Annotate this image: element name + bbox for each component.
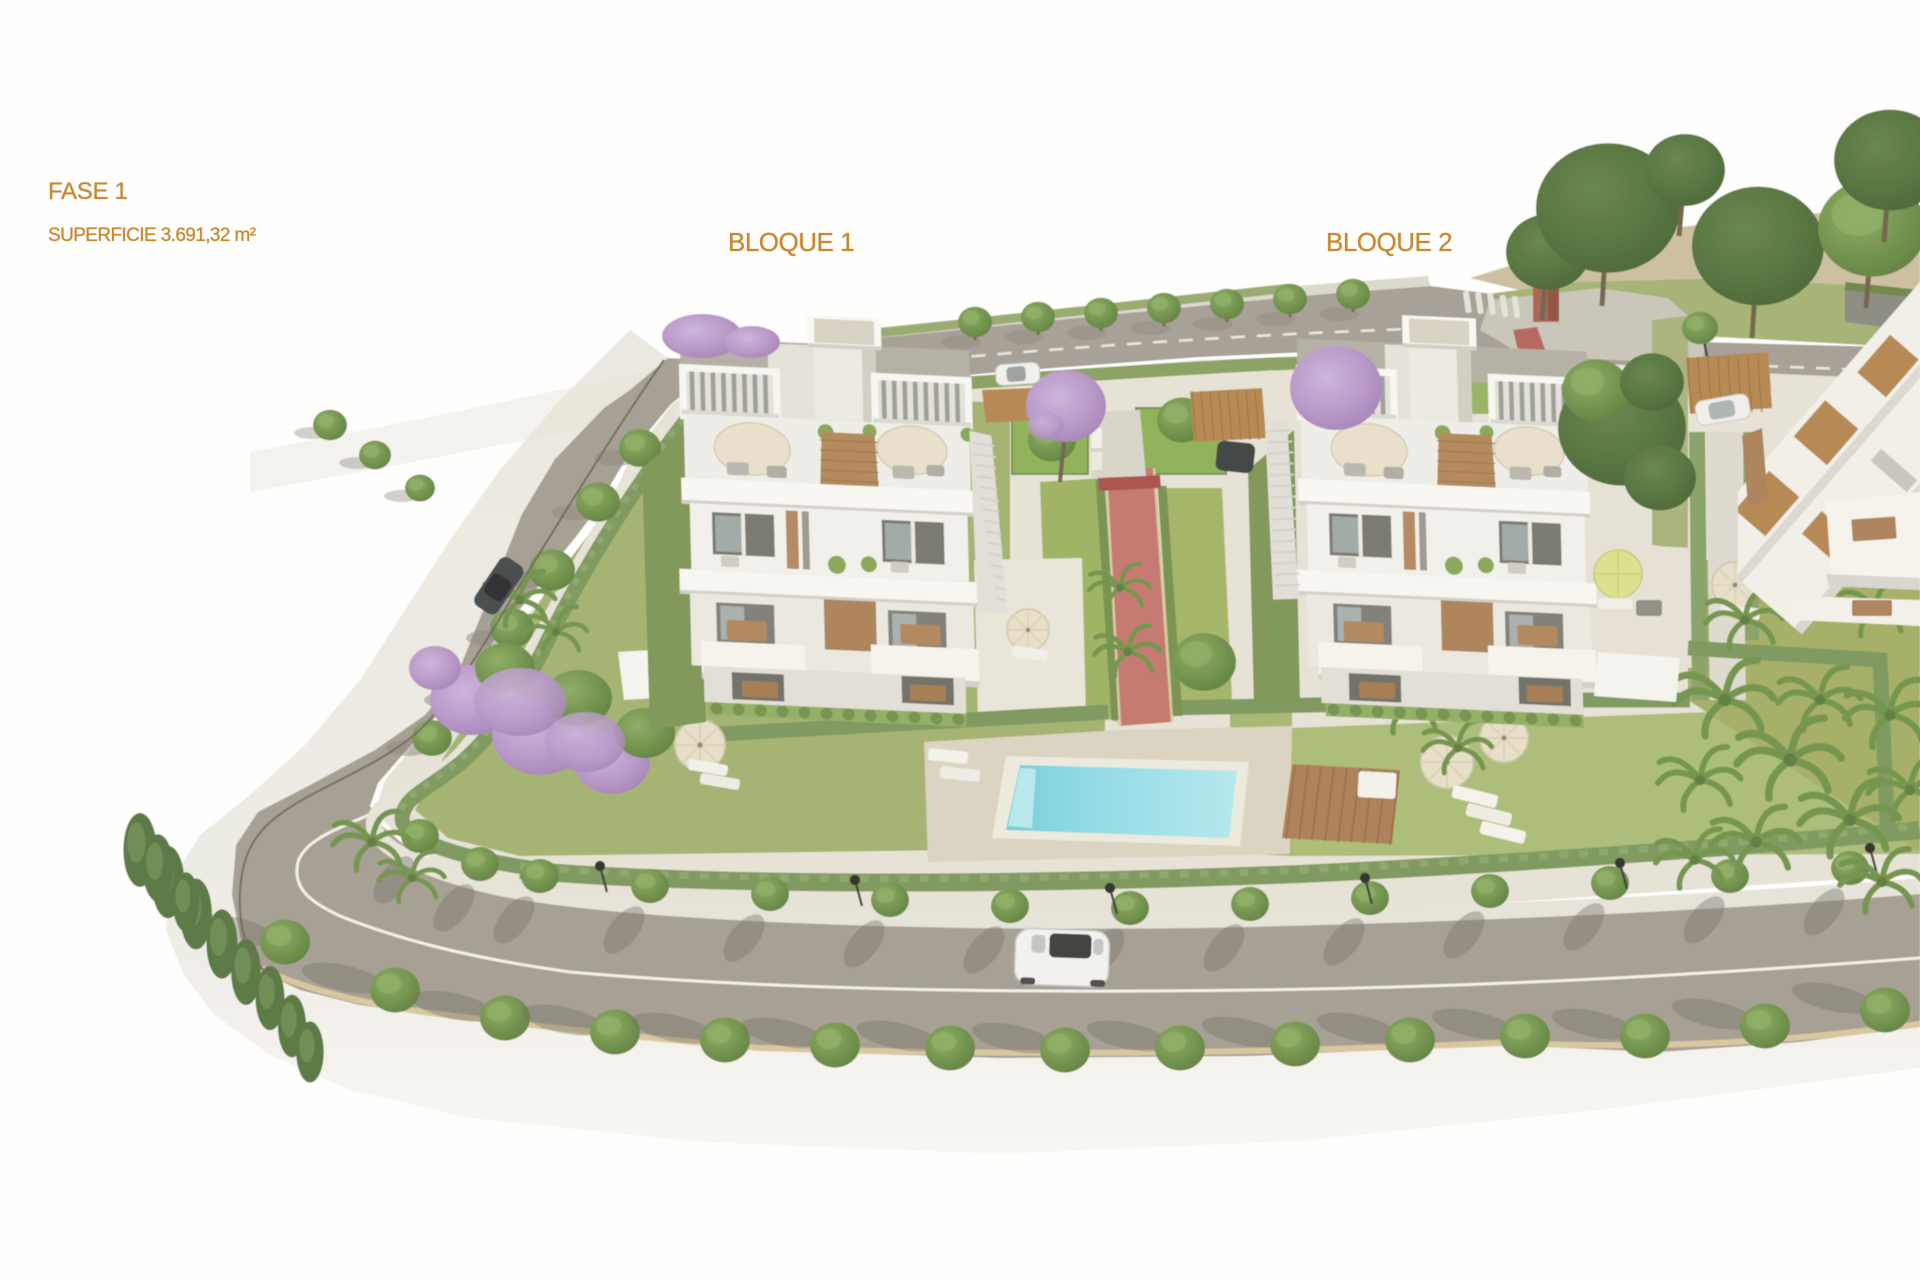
svg-text:SUPERFICIE 3.691,32 m²: SUPERFICIE 3.691,32 m² [48, 225, 256, 246]
svg-text:BLOQUE 1: BLOQUE 1 [728, 227, 854, 257]
svg-text:FASE 1: FASE 1 [48, 178, 128, 205]
svg-text:BLOQUE 2: BLOQUE 2 [1326, 227, 1452, 257]
